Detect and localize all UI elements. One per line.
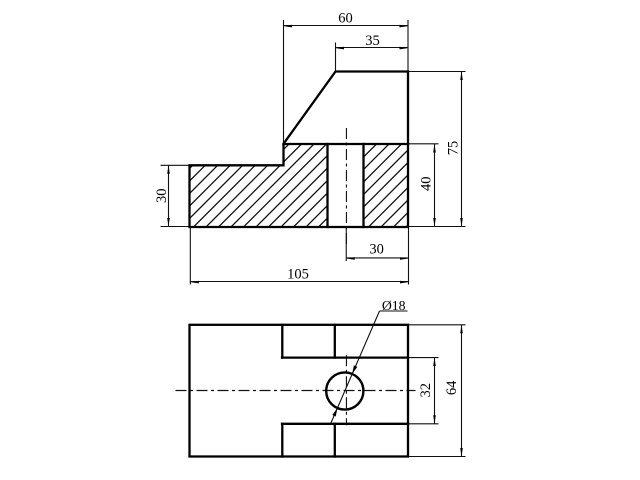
- svg-text:60: 60: [338, 10, 353, 26]
- svg-text:35: 35: [365, 33, 380, 49]
- svg-text:30: 30: [369, 242, 384, 258]
- svg-text:Ø18: Ø18: [382, 298, 406, 313]
- svg-text:64: 64: [444, 380, 460, 395]
- svg-text:30: 30: [154, 189, 170, 204]
- svg-text:105: 105: [287, 267, 309, 283]
- svg-text:75: 75: [446, 141, 462, 156]
- svg-text:32: 32: [418, 383, 434, 398]
- svg-text:40: 40: [419, 176, 435, 191]
